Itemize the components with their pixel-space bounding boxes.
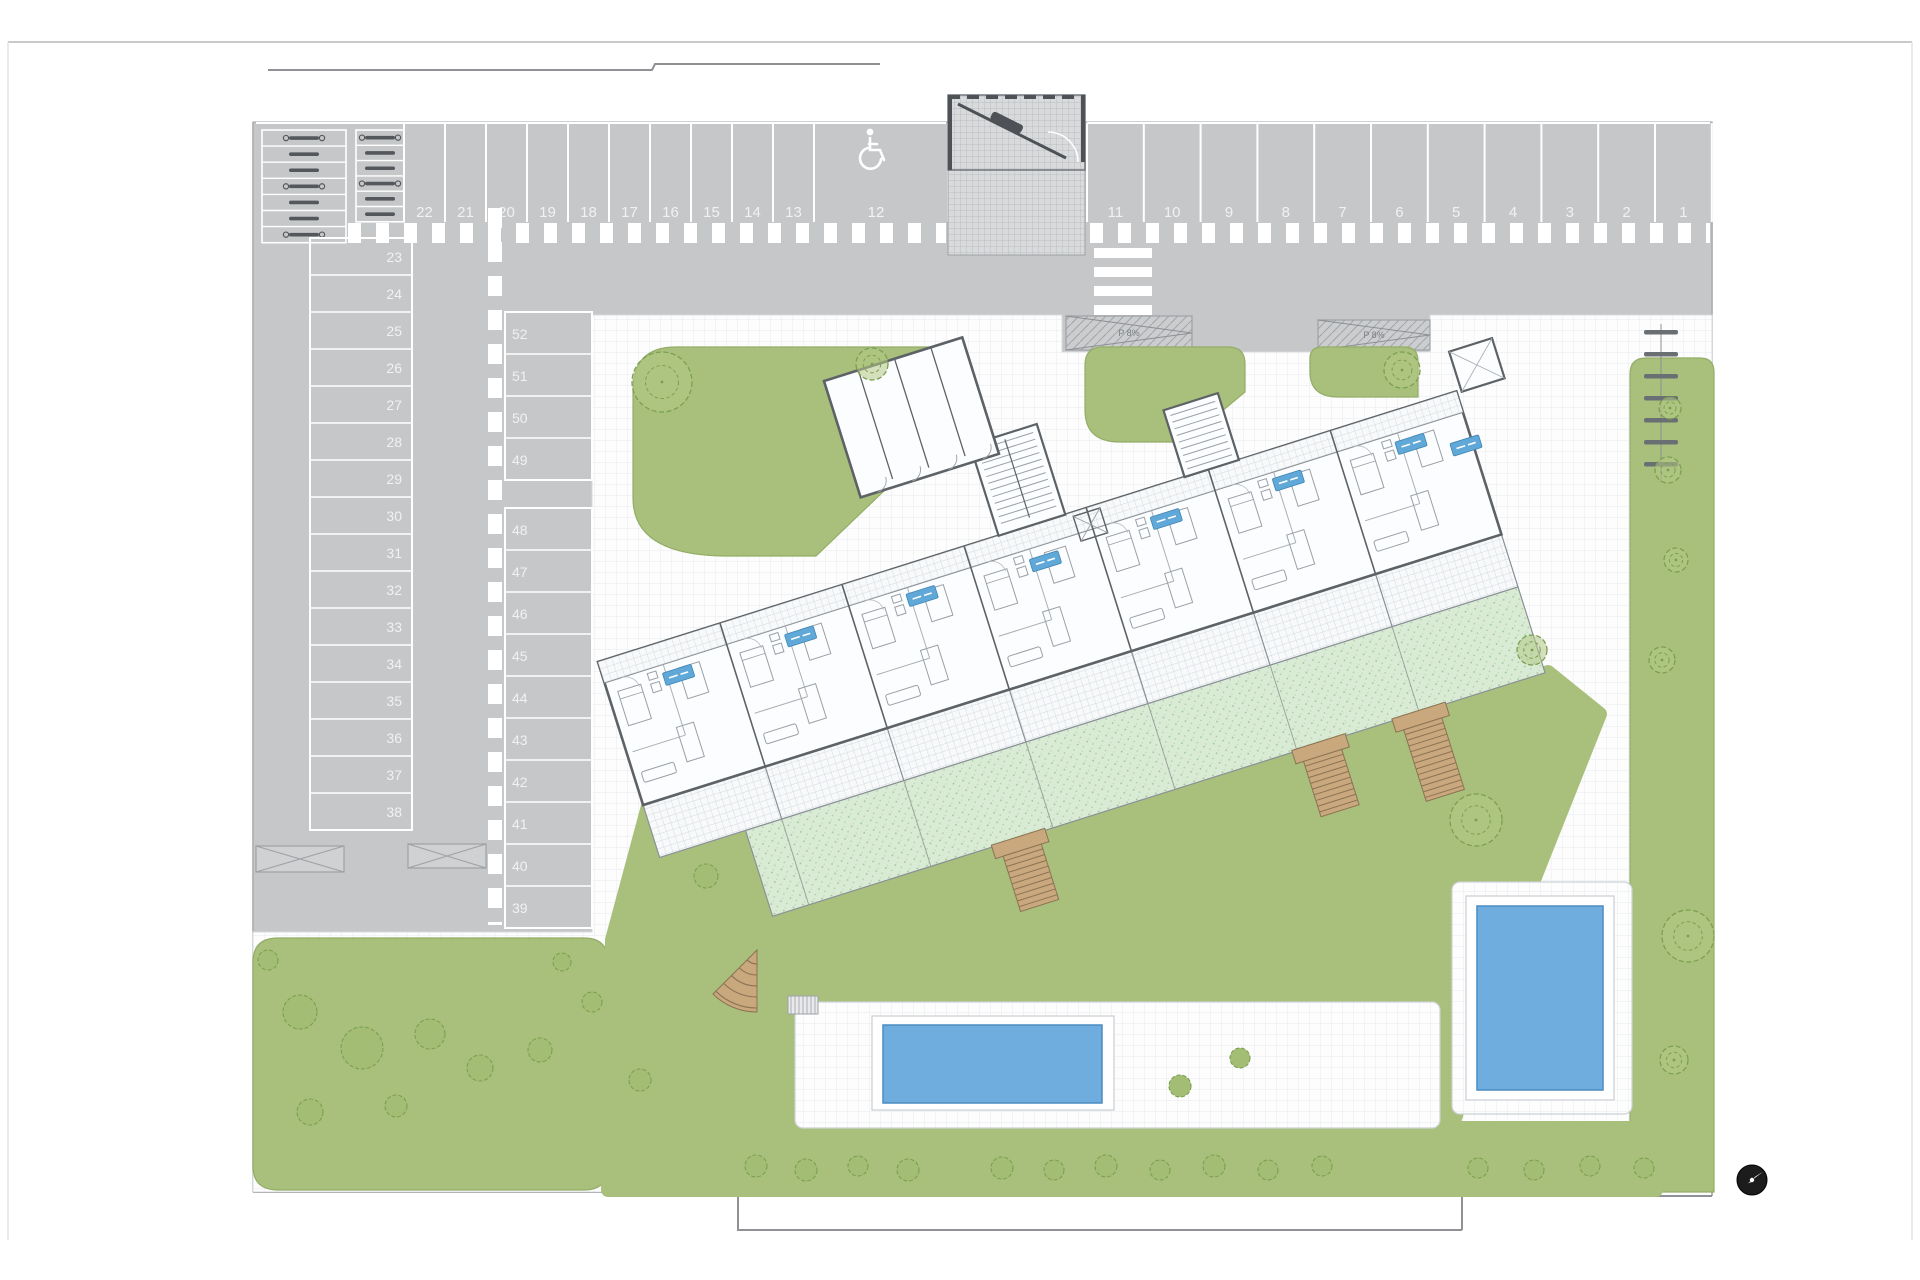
parking-space-number: 18 bbox=[580, 204, 597, 221]
parking-space-number: 14 bbox=[744, 204, 761, 221]
parking-space-number: 32 bbox=[386, 582, 402, 598]
motorcycle-bay-marking bbox=[365, 212, 395, 216]
bush-icon bbox=[467, 1055, 493, 1081]
motorcycle-bay-marking bbox=[289, 217, 319, 221]
parking-space-number: 23 bbox=[386, 249, 402, 265]
tree-icon bbox=[1660, 1046, 1688, 1074]
tree-icon bbox=[632, 352, 692, 412]
parking-space-number: 1 bbox=[1679, 204, 1687, 221]
motorcycle-bay-marking bbox=[365, 182, 395, 186]
parking-space-number: 45 bbox=[512, 648, 528, 664]
parking-space-number: 46 bbox=[512, 606, 528, 622]
motorcycle-bay-marking bbox=[365, 136, 395, 140]
parking-space-number: 11 bbox=[1108, 204, 1124, 221]
parking-space-number: 49 bbox=[512, 452, 528, 468]
bush-icon bbox=[258, 950, 278, 970]
bush-icon bbox=[897, 1159, 919, 1181]
parking-space-number: 35 bbox=[386, 693, 402, 709]
parking-space-number: 34 bbox=[386, 656, 402, 672]
parking-space-number: 52 bbox=[512, 326, 528, 342]
parking-space-number: 36 bbox=[386, 730, 402, 746]
bush-icon bbox=[582, 992, 602, 1012]
parking-space-number: 42 bbox=[512, 774, 528, 790]
parking-space-number: 44 bbox=[512, 690, 528, 706]
tree-icon bbox=[1384, 352, 1420, 388]
motorcycle-bay-marking bbox=[289, 201, 319, 205]
bush-icon bbox=[283, 995, 317, 1029]
tree-icon bbox=[1659, 397, 1681, 419]
parking-space-number: 9 bbox=[1225, 204, 1233, 221]
entry-gate bbox=[948, 95, 1085, 255]
parking-space-number: 31 bbox=[386, 545, 402, 561]
bush-icon bbox=[1312, 1156, 1332, 1176]
motorcycle-bay-marking bbox=[289, 185, 319, 189]
parking-space-number: 30 bbox=[386, 508, 402, 524]
tree-icon bbox=[856, 348, 888, 380]
bush-icon bbox=[341, 1027, 383, 1069]
parking-space-number: 28 bbox=[386, 434, 402, 450]
parking-space-number: 51 bbox=[512, 368, 528, 384]
parking-space-number: 17 bbox=[621, 204, 638, 221]
parking-space-number: 29 bbox=[386, 471, 402, 487]
tree-icon bbox=[1662, 910, 1714, 962]
parking-space-number: 50 bbox=[512, 410, 528, 426]
parking-space-number: 47 bbox=[512, 564, 528, 580]
bush-icon bbox=[1203, 1155, 1225, 1177]
bush-icon bbox=[1150, 1160, 1170, 1180]
bush-icon bbox=[629, 1069, 651, 1091]
bike-rack-bar bbox=[1644, 440, 1678, 445]
parking-space-number: 16 bbox=[662, 204, 679, 221]
parking-space-number: 21 bbox=[457, 204, 474, 221]
bush-icon bbox=[848, 1156, 868, 1176]
parking-space-number: 39 bbox=[512, 900, 528, 916]
bush-icon bbox=[991, 1157, 1013, 1179]
bush-icon bbox=[694, 864, 718, 888]
bush-icon bbox=[795, 1159, 817, 1181]
parking-space-number: 13 bbox=[785, 204, 802, 221]
ramp-label: P 8% bbox=[1118, 328, 1139, 338]
parking-space-number: 37 bbox=[386, 767, 402, 783]
parking-space-number: 10 bbox=[1164, 204, 1181, 221]
motorcycle-bay-marking bbox=[289, 136, 319, 140]
accessible-parking-space-number: 12 bbox=[868, 204, 885, 221]
lawn-southwest bbox=[253, 938, 608, 1190]
crosswalk-stripe bbox=[1094, 305, 1152, 315]
motorcycle-bay-marking bbox=[365, 197, 395, 201]
bush-icon bbox=[1634, 1158, 1654, 1178]
parking-space-number: 24 bbox=[386, 286, 402, 302]
bush-icon bbox=[1524, 1160, 1544, 1180]
motorcycle-bay-marking bbox=[289, 152, 319, 156]
bush-icon bbox=[1468, 1158, 1488, 1178]
parking-space-number: 7 bbox=[1338, 204, 1346, 221]
parking-space-number: 4 bbox=[1509, 204, 1517, 221]
parking-space-number: 5 bbox=[1452, 204, 1460, 221]
parking-space-number: 33 bbox=[386, 619, 402, 635]
bush-icon bbox=[745, 1155, 767, 1177]
parking-space-number: 15 bbox=[703, 204, 720, 221]
parking-space-number: 22 bbox=[416, 204, 433, 221]
parking-space-number: 6 bbox=[1395, 204, 1403, 221]
second-pool bbox=[1477, 906, 1603, 1090]
parking-space-number: 27 bbox=[386, 397, 402, 413]
ramp-label: P 8% bbox=[1363, 330, 1384, 340]
parking-space-number: 41 bbox=[512, 816, 528, 832]
bush-icon bbox=[1044, 1160, 1064, 1180]
bike-rack-bar bbox=[1644, 418, 1678, 423]
tree-icon bbox=[1655, 457, 1681, 483]
parking-space-number: 2 bbox=[1622, 204, 1630, 221]
bike-rack-bar bbox=[1644, 374, 1678, 379]
parking-space-number: 40 bbox=[512, 858, 528, 874]
parking-space-number: 26 bbox=[386, 360, 402, 376]
tree-icon bbox=[1649, 647, 1675, 673]
tree-icon bbox=[1517, 635, 1547, 665]
bush-icon bbox=[1095, 1155, 1117, 1177]
compass-icon bbox=[1737, 1165, 1767, 1195]
parking-space-number: 38 bbox=[386, 804, 402, 820]
parking-space-number: 3 bbox=[1566, 204, 1574, 221]
bush-icon bbox=[385, 1095, 407, 1117]
crosswalk-stripe bbox=[1094, 248, 1152, 258]
parking-space-number: 25 bbox=[386, 323, 402, 339]
site-plan-drawing: 2221201918171615141312111098765432123242… bbox=[0, 0, 1920, 1280]
motorcycle-bay-marking bbox=[289, 168, 319, 172]
bush-icon bbox=[1580, 1156, 1600, 1176]
bush-icon bbox=[553, 953, 571, 971]
bike-rack-bar bbox=[1644, 352, 1678, 357]
parking-space-number: 48 bbox=[512, 522, 528, 538]
bush-icon bbox=[528, 1038, 552, 1062]
bike-rack-bar bbox=[1644, 330, 1678, 335]
tree-icon bbox=[1664, 548, 1688, 572]
tree-icon bbox=[1450, 794, 1502, 846]
crosswalk-stripe bbox=[1094, 286, 1152, 296]
motorcycle-bay-marking bbox=[289, 233, 319, 237]
motorcycle-bay-marking bbox=[365, 166, 395, 170]
main-pool bbox=[883, 1025, 1102, 1103]
parking-space-number: 8 bbox=[1282, 204, 1290, 221]
parking-space-number: 19 bbox=[539, 204, 556, 221]
bush-icon bbox=[415, 1019, 445, 1049]
bush-icon bbox=[297, 1099, 323, 1125]
bush-icon bbox=[1230, 1048, 1250, 1068]
bush-icon bbox=[1169, 1075, 1191, 1097]
motorcycle-bay-marking bbox=[365, 151, 395, 155]
parking-space-number: 43 bbox=[512, 732, 528, 748]
crosswalk-stripe bbox=[1094, 267, 1152, 277]
bush-icon bbox=[1258, 1160, 1278, 1180]
